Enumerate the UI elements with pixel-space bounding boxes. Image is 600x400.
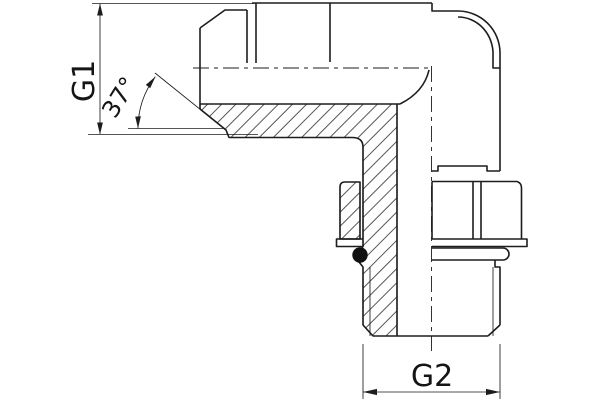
locknut-top-face bbox=[432, 182, 522, 240]
bore-junction-curve bbox=[400, 70, 429, 104]
g1-arrow-down bbox=[97, 123, 103, 135]
shoulder-boss-profile bbox=[432, 166, 500, 171]
body-section-hatch bbox=[200, 104, 397, 336]
angle-arrow-top bbox=[146, 77, 156, 89]
g2-label: G2 bbox=[411, 359, 453, 394]
corner-outer-arc bbox=[458, 11, 500, 171]
angle-flank-line bbox=[155, 73, 224, 129]
thread-crest-right bbox=[495, 260, 500, 325]
thread-chamfer-right bbox=[488, 325, 500, 336]
nose-chamfer-line bbox=[200, 10, 247, 28]
g2-dimension: G2 bbox=[363, 344, 500, 399]
o-ring-section-dot bbox=[353, 248, 367, 262]
locknut-section-hatch bbox=[340, 182, 360, 239]
section-hatching bbox=[200, 104, 397, 336]
g2-arrow-right bbox=[486, 389, 500, 395]
washer-left-outline bbox=[337, 239, 364, 247]
o-ring-external-band bbox=[432, 248, 509, 260]
corner-step bbox=[432, 3, 458, 11]
g1-arrow-up bbox=[97, 4, 103, 16]
g1-label: G1 bbox=[67, 60, 102, 102]
elbow-corner-outline bbox=[432, 3, 500, 171]
washer-right-outline bbox=[432, 239, 527, 247]
angle-arrow-bottom bbox=[135, 116, 141, 128]
corner-inner-arc bbox=[458, 17, 500, 68]
angle-label: 37° bbox=[96, 72, 142, 123]
angle-dimension: 37° bbox=[96, 72, 224, 129]
g2-arrow-left bbox=[363, 389, 377, 395]
elbow-fitting-technical-drawing: G1 37° G2 bbox=[0, 0, 600, 400]
drawing-canvas: G1 37° G2 bbox=[0, 0, 600, 400]
